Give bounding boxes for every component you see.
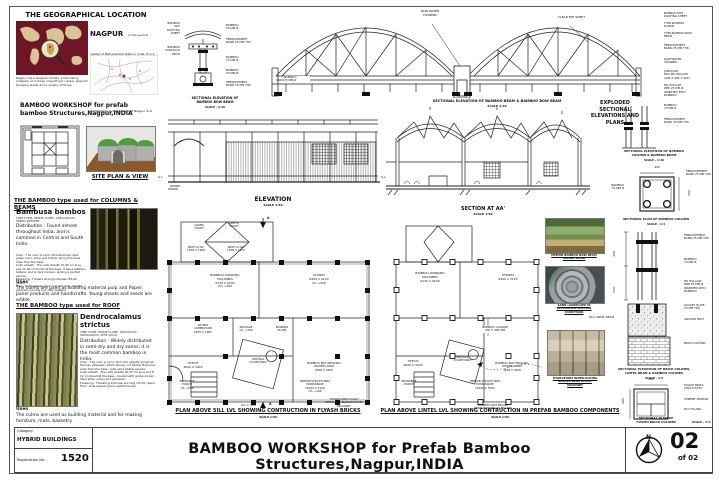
room-l-workspace: PREFAB STRUCTURES WORKSPACE 10100 X 5100 — [452, 380, 518, 390]
room-office: OFFICE 4000 X 3945 — [173, 362, 213, 370]
bow-label-b50-bot: BAMBOO 50 MM Ø — [226, 69, 266, 76]
exp-cap-col-beam-scale: SCALE - 1:10 — [596, 159, 712, 162]
bow-beam-detail: BAMBOO MAT ROOFING SHEET BAMBOO PURLIN 5… — [163, 12, 268, 116]
bamboo-roof-uses-title: Uses — [16, 407, 46, 413]
bow-label-roof-sheet: BAMBOO MAT ROOFING SHEET — [163, 22, 180, 36]
exp-plan-column-drawing — [626, 168, 690, 216]
site-plan-drawing — [18, 122, 82, 180]
photo-blocks-wall — [547, 330, 605, 376]
registration-cell: Registration No. : 1520 — [14, 448, 94, 473]
sheet-title-cell: BAMBOO WORKSHOP for Prefab Bamboo Struct… — [92, 427, 627, 473]
exp-label-bow-beam: THIN BAMBOO BOW BEAM — [664, 32, 712, 39]
page-of: of 02 — [678, 454, 698, 462]
elevation-drawing — [166, 116, 380, 194]
arch-drawing — [270, 14, 642, 98]
bamboo-cb-uses: The culms are used as building material,… — [16, 286, 156, 304]
exp-dim-300: 300 — [613, 243, 617, 257]
bow-label-b70: BAMBOO 70 MM Ø — [226, 56, 266, 63]
arch-label-rain: RAIN WATER CHANNEL — [408, 10, 452, 18]
elevation-scale: SCALE 1:50 — [218, 204, 328, 208]
category-label: Category — [17, 429, 33, 433]
north-letter: N — [646, 434, 651, 441]
room-workspace: PREFAB STRUCTURES WORKSPACE 10100 X 5100… — [281, 380, 349, 394]
exp-label-rcc: RCC LINTEL BEAM — [588, 316, 614, 319]
bow-label-ferro-top: FERROCEMENT BAND 25 MM THK — [226, 38, 266, 45]
plan-sill: A LADIES TOILET GENTS TOILET BATH & WC 1… — [163, 216, 375, 408]
plan-lintel-column-label: BAMBOO COLUMN 400 X 400 MM — [472, 326, 518, 333]
bamboo-cb-uses-title: Uses — [16, 280, 46, 286]
exp-dim-400d: 400 — [622, 392, 626, 404]
category-value: HYBRID BUILDINGS — [17, 437, 91, 444]
bamboo-roof-title: THE BAMBOO type used for ROOF — [16, 303, 160, 310]
sheet-title: BAMBOO WORKSHOP for Prefab Bamboo Struct… — [93, 441, 626, 473]
registration-label: Registration No. : — [17, 458, 47, 462]
exp-label-roof-sheet: BAMBOO MAT ROOFING SHEET — [664, 12, 712, 19]
photo-sand-courtyard — [545, 266, 605, 304]
exp-label-b70-c: BAMBOO 70 MM Ø — [684, 258, 712, 265]
room-stores: STORES 6400 X 3120 C/L +300 — [289, 274, 349, 285]
plan-sill-lvl: LVL ± 0.00 — [241, 404, 271, 407]
category-cell: Category HYBRID BUILDINGS — [14, 427, 94, 450]
exp-label-ferro-c: FERROCEMENT BAND 25 MM THK — [686, 170, 712, 177]
drawing-sheet: THE GEOGRAPHICAL LOCATION NAGPUR is the … — [0, 0, 720, 480]
bamboo-roof-details: Color : The culm is up to 16 m tall, sli… — [80, 361, 156, 389]
photo-bow-beam-caption: PREFAB BAMBOO BOW BEAM (SHORT SPAN) — [540, 254, 608, 261]
exp-label-ms-pipe-a: MS HOLLOW PIPE 25 MM Ø, INSERTED INTO BA… — [664, 84, 712, 98]
exp-label-ferro-b: FERROCEMENT BAND 25 MM THK — [664, 118, 712, 125]
bamboo-roof-panel: THE BAMBOO type used for ROOF Dendrocala… — [14, 303, 158, 425]
bamboo-cb-panel: THE BAMBOO type used for COLUMNS & BEAMS… — [14, 198, 158, 300]
exp-cap-col-beam: SECTIONAL ELEVATION OF BAMBOO COLUMN & B… — [596, 150, 712, 158]
exp-cap-plan-col-scale: SCALE - 1:4 — [600, 223, 712, 226]
room-l-machines: BAMBOO WORKING MACHINES 6125 X 9100 — [402, 272, 458, 283]
arch-elevation: RAIN WATER CHANNEL CLEAR FRP SHEET BAMBO… — [270, 10, 642, 110]
exp-dim-550: 550 — [613, 279, 617, 293]
plan-sill-scale: SCALE 1:50 — [158, 416, 378, 419]
bow-label-ferro-bot: FERROCEMENT BAND 25 MM THK — [226, 81, 266, 88]
room-l-porch: ENTRANCE PORCH — [394, 380, 424, 387]
photo-sand-caption: SAND LANDSCAPE IN SKYLIGHTED CENTRAL COU… — [540, 304, 608, 314]
plan-lintel-caption: PLAN ABOVE LINTEL LVL SHOWING CONTRUCTIO… — [380, 408, 620, 415]
room-bath2: BATH & WC 1500 X 1972 — [221, 246, 251, 253]
arch-label-frp: CLEAR FRP SHEET — [558, 16, 604, 20]
photo-bow-beam — [545, 218, 605, 254]
plan-sill-marker-a: A — [267, 216, 277, 220]
geo-city-name: NAGPUR — [90, 30, 123, 38]
geo-panel: THE GEOGRAPHICAL LOCATION NAGPUR is the … — [14, 11, 158, 97]
bamboo-roof-distribution: Distribution : Widely distributed in sem… — [80, 339, 156, 362]
exp-label-pcc: PCC FILLING — [684, 408, 712, 411]
arch-label-b70: BAMBOO 70 MM Ø — [284, 76, 310, 83]
elevation-gl-left: G.L. — [158, 176, 168, 179]
exp-label-junction: JUNCTION BOX,MS HOLLOW (400 X 400 X 400) — [664, 70, 712, 80]
bamboo-roof-subtitle: TREE FORM, DENSE CLUMP, DECIDUOUS, GREGA… — [80, 331, 156, 338]
room-passage: PASSAGE C/L +300 — [231, 326, 261, 333]
room-ladies: LADIES TOILET — [185, 224, 213, 231]
plan-sill-caption: PLAN ABOVE SILL LVL SHOWING CONTRUCTION … — [158, 408, 378, 415]
city-map — [90, 55, 158, 95]
bamboo-cb-distribution: Distribution : Found almost throughout I… — [16, 224, 86, 247]
exp-label-flyash: FLYASH BRICK 230X115X75 — [684, 384, 712, 391]
title-bar: Category HYBRID BUILDINGS Registration N… — [14, 427, 712, 471]
plan-sill-note: HYDRAFORM FLYASH INTERLOCK BLOCKS IN DRY… — [315, 398, 373, 408]
room-gents: GENTS TOILET — [221, 222, 247, 229]
room-bath1: BATH & WC 1500 X 1965 — [181, 246, 211, 253]
exp-label-gusset: GUSSET PLATE 25 MM THK — [684, 304, 712, 311]
plan-sill-marker-a1: A' — [269, 402, 281, 406]
bamboo-cb-photo — [90, 208, 158, 270]
exp-label-rain: RAIN WATER CHANNEL — [664, 58, 712, 65]
bow-beam-drawing — [181, 20, 225, 92]
photo-blocks-caption: HYDRAFORM INTERLOCKING BLOCKS WALL IN DR… — [542, 377, 608, 387]
exp-brick-elev-drawing — [626, 336, 672, 366]
room-l-office: OFFICE 4000 X 3945 — [394, 360, 432, 368]
room-supervisor: WORKS SUPERVISOR 2550 X 1965 — [181, 324, 225, 334]
room-porch: ENTRANCE PORCH C/L +300 — [171, 380, 203, 390]
site-heading: BAMBOO WORKSHOP for prefab bamboo Struct… — [20, 102, 156, 118]
bow-scale: SCALE - 1:10 — [165, 106, 265, 109]
bamboo-roof-species: Dendrocalamus strictus — [80, 313, 156, 330]
exp-dim-400b: 400 — [688, 184, 692, 196]
exp-label-ms-pipe-b: MS HOLLOW PIPE 25 MM Ø, INSERTED INTO BA… — [684, 280, 712, 294]
exp-label-ferro-d: FERROCEMENT BAND 25 MM THK — [684, 234, 712, 241]
exp-label-ferro-a: FERROCEMENT BAND 25 MM THK — [664, 44, 712, 51]
page-number: 02 — [670, 429, 699, 453]
exp-column-base-drawing — [616, 230, 678, 340]
site-panel: BAMBOO WORKSHOP for prefab bamboo Struct… — [14, 100, 158, 196]
exp-cap-brick-plan-scale: SCALE - 1:4 — [690, 421, 712, 424]
bamboo-roof-uses: The culms are used as building material … — [16, 413, 156, 425]
bamboo-cb-subtitle: TREE FORM, DENSE CLUMP, GREGARIOUS, SPIN… — [16, 217, 86, 224]
registration-value: 1520 — [61, 453, 89, 464]
exp-col-beam-drawing — [612, 104, 660, 150]
bow-caption: SECTIONAL ELEVATION OF BAMBOO BOW BEAM — [165, 96, 265, 104]
exp-dim-400c: 400 — [634, 378, 668, 382]
site-caption: SITE PLAN & VIEW — [86, 174, 154, 181]
room-l-loom: BAMBOO MAT WEAVING POWER LOOM 4500 X 394… — [486, 362, 538, 372]
plan-lintel: BAMBOO WORKING MACHINES 6125 X 9100 STOR… — [392, 216, 542, 408]
sheet-number-cell: N 02 of 02 — [625, 427, 713, 473]
site-view-3d — [86, 126, 156, 172]
room-courtyard: CENTRAL COURTYARD — [239, 358, 277, 365]
room-plant: BAMBOO PLANT — [267, 326, 297, 333]
exp-cap-brick-elev: SECTIONAL ELEVATION OF BRICK COLUMN, LIN… — [596, 368, 712, 376]
section-drawing — [384, 106, 592, 206]
exp-label-anchor: ANCHOR BOLT — [684, 318, 712, 321]
exp-label-b70-b: BAMBOO 70 MM Ø — [598, 184, 624, 191]
bow-label-b50-top: BAMBOO 50 MM Ø — [226, 24, 266, 31]
geo-title: THE GEOGRAPHICAL LOCATION — [14, 11, 158, 19]
room-loom: BAMBOO MAT WEAVING POWER LOOM 4500 X 394… — [295, 362, 353, 372]
plan-lintel-scale: SCALE 1:50 — [380, 416, 620, 419]
exp-dim-400a: 400 — [640, 166, 674, 170]
exp-label-purlin: THIN BAMBOO PURLIN — [664, 22, 712, 29]
exp-label-b70-a: BAMBOO 70 MM Ø — [664, 104, 712, 111]
world-map — [16, 21, 88, 75]
room-l-stores: STORES 6400 X 3120 — [484, 274, 532, 282]
geo-map-caption: Nagpur has a pleasant climate, a fascina… — [16, 77, 88, 87]
arch-caption: SECTIONAL ELEVATION OF BAMBOO BEAM & BAM… — [372, 99, 622, 103]
room-l-courtyard: CENTRAL COURTYARD — [444, 356, 480, 363]
bamboo-roof-photo — [16, 313, 78, 407]
exp-label-brick-col: BRICK COLUMN — [684, 342, 712, 345]
bow-label-purlin: BAMBOO PURLIN 50 MM Ø — [163, 46, 180, 56]
exp-label-mortar: CEMENT MORTAR — [684, 398, 712, 401]
room-machines: BAMBOO WORKING MACHINES 6125 X 9100 C/L … — [195, 274, 255, 289]
